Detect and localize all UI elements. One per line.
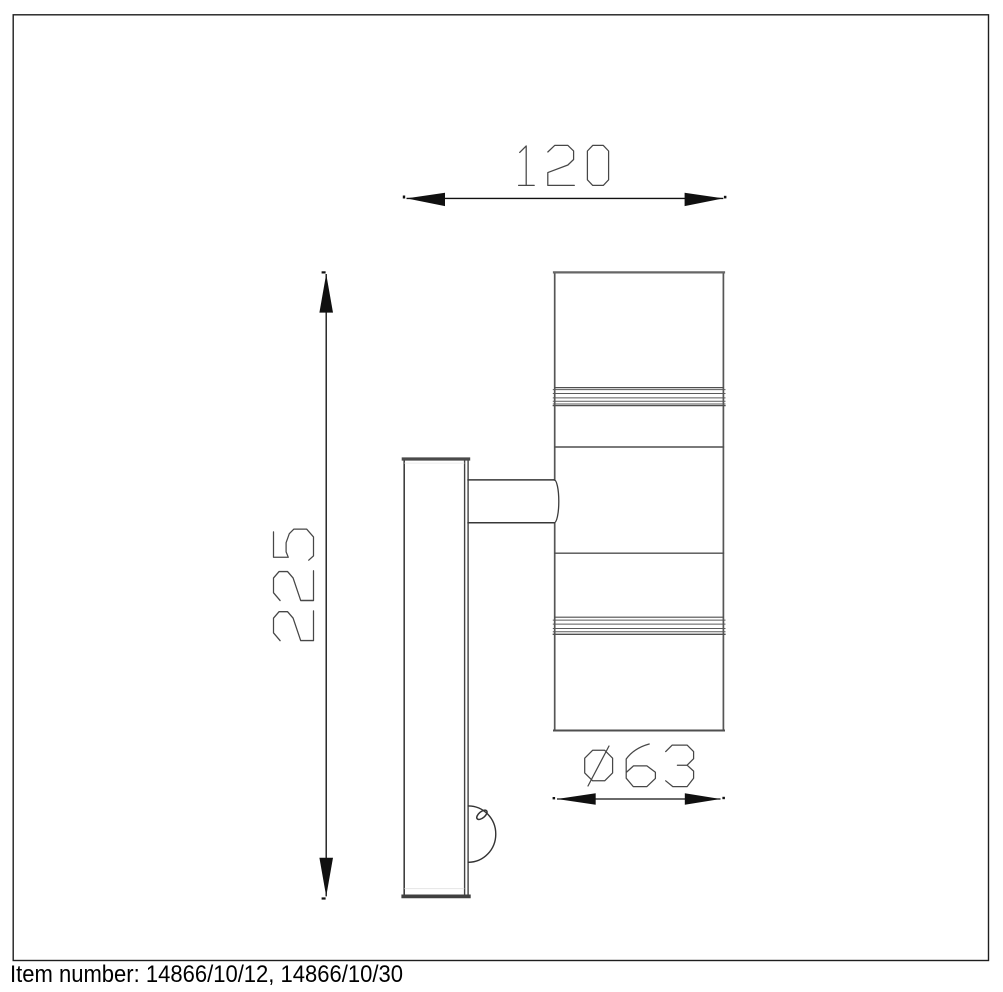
svg-text:Item number: 14866/10/12, 1486: Item number: 14866/10/12, 14866/10/30 <box>10 961 403 988</box>
